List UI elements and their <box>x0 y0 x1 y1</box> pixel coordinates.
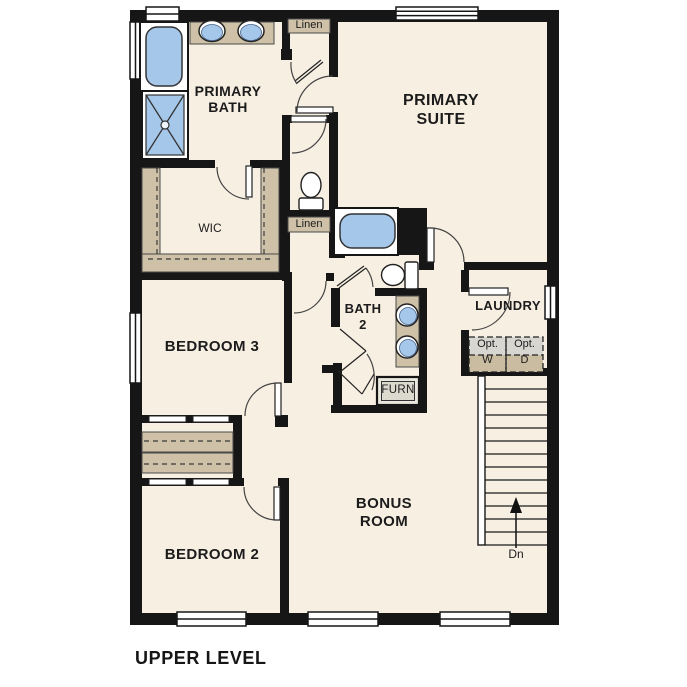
room-label-bath2-line1: BATH <box>328 302 398 316</box>
page-title: UPPER LEVEL <box>135 648 267 669</box>
toilet-icon <box>299 173 323 211</box>
stair-stringer <box>478 376 485 545</box>
room-label-primary-bath-line1: PRIMARY <box>168 84 288 99</box>
room-label-bedroom3: BEDROOM 3 <box>138 339 286 355</box>
bathtub-icon <box>334 208 398 255</box>
linen-lower-label: Linen <box>288 219 330 231</box>
opt-dryer-label-line2: D <box>506 355 543 367</box>
closet-door <box>149 479 186 485</box>
closet-door <box>149 416 186 422</box>
room-label-primary-suite-line1: PRIMARY <box>368 92 514 109</box>
opt-washer-label-line2: W <box>469 355 506 367</box>
closet-door <box>193 416 229 422</box>
stairs-down-label: Dn <box>498 548 534 561</box>
closet-door <box>193 479 229 485</box>
linen-upper-label: Linen <box>288 20 330 32</box>
sink-icon <box>396 336 418 358</box>
window-icon <box>146 7 179 21</box>
furnace-label: FURN <box>377 384 419 396</box>
sink-icon <box>199 21 225 42</box>
opt-dryer-label-line1: Opt. <box>506 339 543 351</box>
room-label-primary-bath-line2: BATH <box>168 100 288 115</box>
sink-icon <box>238 21 264 42</box>
window-icon <box>177 612 246 626</box>
window-icon <box>440 612 510 626</box>
room-label-laundry: LAUNDRY <box>458 299 558 313</box>
floor-plan: Linen PRIMARY BATH PRIMARY SUITE Linen W… <box>0 0 687 687</box>
opt-washer-label-line1: Opt. <box>469 339 506 351</box>
room-label-bath2-line2: 2 <box>328 318 398 332</box>
room-label-bedroom2: BEDROOM 2 <box>138 547 286 563</box>
wic-shelf-bottom <box>142 254 279 272</box>
closet-shelf-bed2 <box>142 453 233 473</box>
room-label-bonus-line1: BONUS <box>328 496 440 512</box>
plumbing-chase <box>398 208 427 255</box>
floor-plan-graphics <box>0 0 687 687</box>
sink-icon <box>396 304 418 326</box>
closet-shelf-bed3 <box>142 432 233 452</box>
room-label-primary-suite-line2: SUITE <box>368 111 514 128</box>
bathtub-icon <box>140 22 188 92</box>
window-icon <box>396 7 478 20</box>
room-label-bonus-line2: ROOM <box>328 514 440 530</box>
window-icon <box>308 612 378 626</box>
room-label-wic: WIC <box>180 222 240 235</box>
